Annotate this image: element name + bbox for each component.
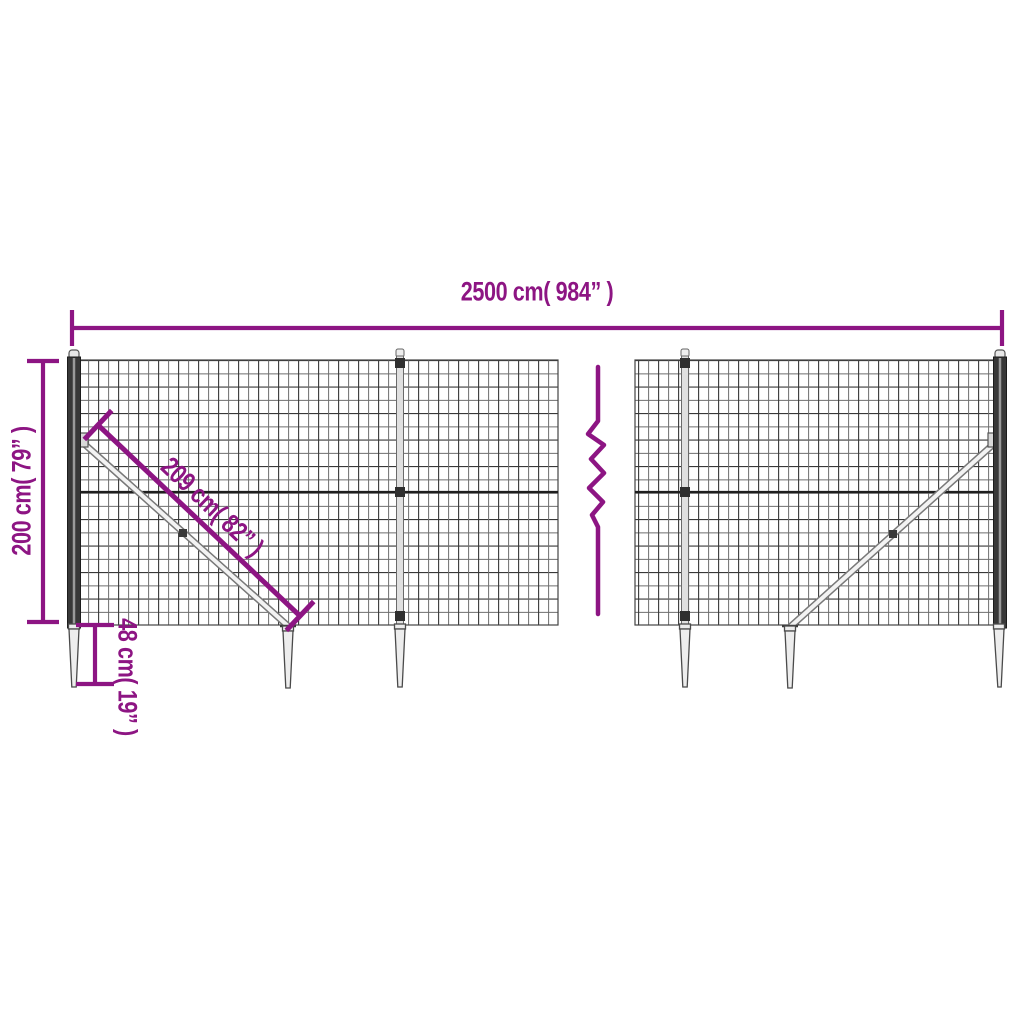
brace-mid-clip-right bbox=[889, 530, 897, 538]
mesh-panel-right bbox=[635, 360, 1003, 625]
intermediate-post-left bbox=[395, 349, 405, 624]
fence-dimension-diagram: 2500 cm( 984” ) 200 cm( 79” ) 209 cm( 82… bbox=[0, 0, 1024, 1024]
mesh-panel-left bbox=[78, 360, 558, 625]
ground-spike bbox=[994, 624, 1005, 687]
post-clip bbox=[680, 358, 690, 368]
intermediate-post-right bbox=[680, 349, 690, 624]
end-post-right bbox=[994, 350, 1007, 628]
dimension-width-2500cm bbox=[72, 310, 1002, 346]
post-clip bbox=[680, 487, 690, 497]
width-dimension-label: 2500 cm( 984” ) bbox=[461, 277, 614, 308]
ground-spike bbox=[680, 624, 691, 687]
height-dimension-label: 200 cm( 79” ) bbox=[7, 426, 38, 555]
post-clip bbox=[395, 358, 405, 368]
brace-mid-clip-left bbox=[179, 529, 187, 537]
post-clip bbox=[395, 487, 405, 497]
end-post-left bbox=[68, 350, 81, 628]
ground-spike bbox=[69, 624, 80, 687]
ground-spike-brace-anchor bbox=[280, 626, 296, 688]
ground-spike bbox=[395, 624, 406, 687]
post-clip bbox=[680, 611, 690, 621]
ground-spike-brace-anchor bbox=[782, 626, 798, 688]
break-zigzag-line bbox=[588, 367, 604, 614]
spike-dimension-label: 48 cm( 19” ) bbox=[112, 618, 143, 736]
post-clip bbox=[395, 611, 405, 621]
diagram-drawing bbox=[0, 0, 1024, 1024]
ground-spikes bbox=[69, 624, 1005, 688]
dimension-spike-48cm bbox=[76, 625, 114, 684]
